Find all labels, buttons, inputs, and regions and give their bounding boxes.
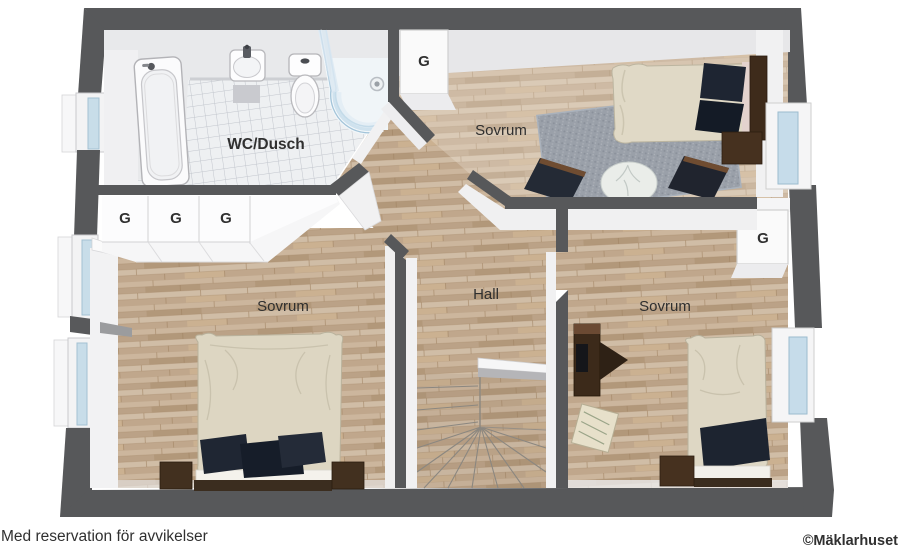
svg-text:WC/Dusch: WC/Dusch xyxy=(227,136,305,153)
svg-text:Hall: Hall xyxy=(473,286,499,303)
svg-text:G: G xyxy=(220,210,232,227)
svg-text:G: G xyxy=(418,53,430,70)
svg-text:©Mäklarhuset: ©Mäklarhuset xyxy=(803,533,898,548)
svg-text:G: G xyxy=(119,210,131,227)
svg-text:Med reservation för avvikelser: Med reservation för avvikelser xyxy=(1,528,208,545)
svg-text:G: G xyxy=(757,230,769,247)
svg-text:Sovrum: Sovrum xyxy=(639,298,691,315)
svg-text:Sovrum: Sovrum xyxy=(257,298,309,315)
svg-text:G: G xyxy=(170,210,182,227)
svg-text:Sovrum: Sovrum xyxy=(475,122,527,139)
